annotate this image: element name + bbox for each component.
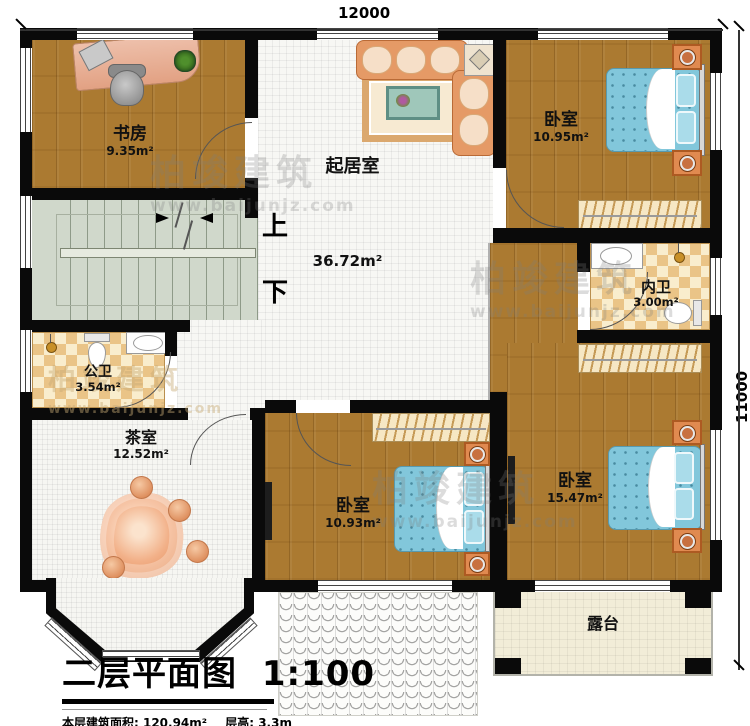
- potted-plant: [174, 50, 196, 72]
- floor-material-divider: [488, 243, 490, 400]
- wall-bottom: [250, 580, 318, 592]
- terrace: 露台: [493, 590, 713, 676]
- wall-hall-top: [493, 228, 722, 243]
- tea-room-label: 茶室 12.52m²: [106, 428, 176, 462]
- study-label: 书房 9.35m²: [80, 124, 180, 159]
- bedroom2-label: 卧室 10.93m²: [315, 496, 391, 531]
- dimension-top: 12000: [338, 4, 390, 22]
- wall-study-right-stub: [245, 178, 258, 218]
- bed2-nightstand: [464, 442, 490, 466]
- terrace-post: [685, 592, 711, 608]
- terrace-post: [495, 658, 521, 674]
- floor-plan-canvas: 露台: [0, 0, 750, 726]
- wall-study-bottom: [20, 188, 258, 200]
- terrace-post: [495, 592, 521, 608]
- bedroom1-label: 卧室 10.95m²: [525, 110, 597, 145]
- bedroom3-label: 卧室 15.47m²: [537, 471, 613, 506]
- title-block: 二层平面图 1:100 本层建筑面积: 120.94m² 层高: 3.3m: [62, 646, 362, 726]
- window-stair-left: [20, 196, 32, 268]
- wall-bedroom2-top: [265, 400, 296, 413]
- plan-title: 二层平面图: [62, 654, 237, 694]
- coffee-table: [386, 86, 440, 120]
- bed3-duvet-fold: [648, 447, 675, 527]
- stairwell: [32, 200, 258, 320]
- stair-down-label: 下: [262, 272, 288, 309]
- wall-tearoom-top: [20, 408, 188, 420]
- inner-bath-label: 内卫 3.00m²: [620, 278, 692, 310]
- living-room-floor-strip: [177, 320, 265, 420]
- wall-stair-bottom: [20, 320, 190, 332]
- bed2-nightstand: [464, 552, 490, 576]
- bedroom3-tv: [508, 456, 515, 524]
- window-study-left: [20, 48, 32, 132]
- living-room-label: 起居室: [300, 156, 405, 178]
- window-bath-left: [20, 330, 32, 392]
- window-bedroom2-bottom: [318, 580, 452, 592]
- bed1-duvet-fold: [646, 69, 675, 149]
- terrace-label: 露台: [495, 614, 711, 633]
- bed1-nightstand: [672, 44, 702, 70]
- public-bath-label: 公卫 3.54m²: [63, 364, 133, 395]
- terrace-post: [685, 658, 711, 674]
- wall-innerbath-left-stub: [577, 243, 590, 272]
- toilet-tank: [693, 300, 702, 326]
- wall-innerbath-bottom: [577, 330, 722, 343]
- shower-head: [46, 342, 57, 353]
- wall-tearoom-top: [250, 408, 265, 420]
- stair-handrail: [60, 248, 256, 258]
- dimension-right: 11000: [733, 367, 750, 427]
- living-room-area: 36.72m²: [295, 252, 400, 270]
- desk-chair: [110, 70, 144, 106]
- sink-basin: [600, 247, 632, 265]
- wall-bed2-bed3: [490, 392, 507, 580]
- shower-head: [674, 252, 685, 263]
- wall-tearoom-right: [252, 420, 265, 580]
- bed2-duvet-fold: [436, 467, 463, 549]
- bedroom3-wardrobe: [578, 344, 702, 373]
- wall-bottom: [452, 580, 535, 592]
- plan-scale: 1:100: [262, 654, 375, 694]
- table-flowers: [396, 94, 410, 107]
- window-bedroom1-right: [710, 73, 722, 150]
- window-terrace-door: [535, 580, 670, 592]
- bed3-nightstand: [672, 420, 702, 445]
- stair-arrow-right: [156, 213, 169, 223]
- bedroom2-wardrobe: [372, 413, 490, 442]
- window-bedroom3-right: [710, 430, 722, 540]
- bedroom2-tv: [265, 482, 272, 540]
- stair-arrow-left: [200, 213, 213, 223]
- wall-bedroom2-top: [350, 400, 493, 413]
- bed1-nightstand: [672, 150, 702, 176]
- bedroom1-wardrobe: [578, 200, 702, 230]
- wall-bottom: [670, 580, 722, 592]
- stair-up-label: 上: [262, 206, 288, 243]
- window-innerbath-right: [710, 258, 722, 315]
- toilet-tank: [84, 333, 110, 342]
- floor-height: 层高: 3.3m: [225, 716, 292, 726]
- floor-area: 本层建筑面积: 120.94m²: [62, 716, 207, 726]
- sink-basin: [133, 335, 163, 351]
- wall-bottom: [20, 580, 55, 592]
- bed3-nightstand: [672, 528, 702, 553]
- wall-living-right: [493, 28, 506, 168]
- wall-study-right: [245, 40, 258, 118]
